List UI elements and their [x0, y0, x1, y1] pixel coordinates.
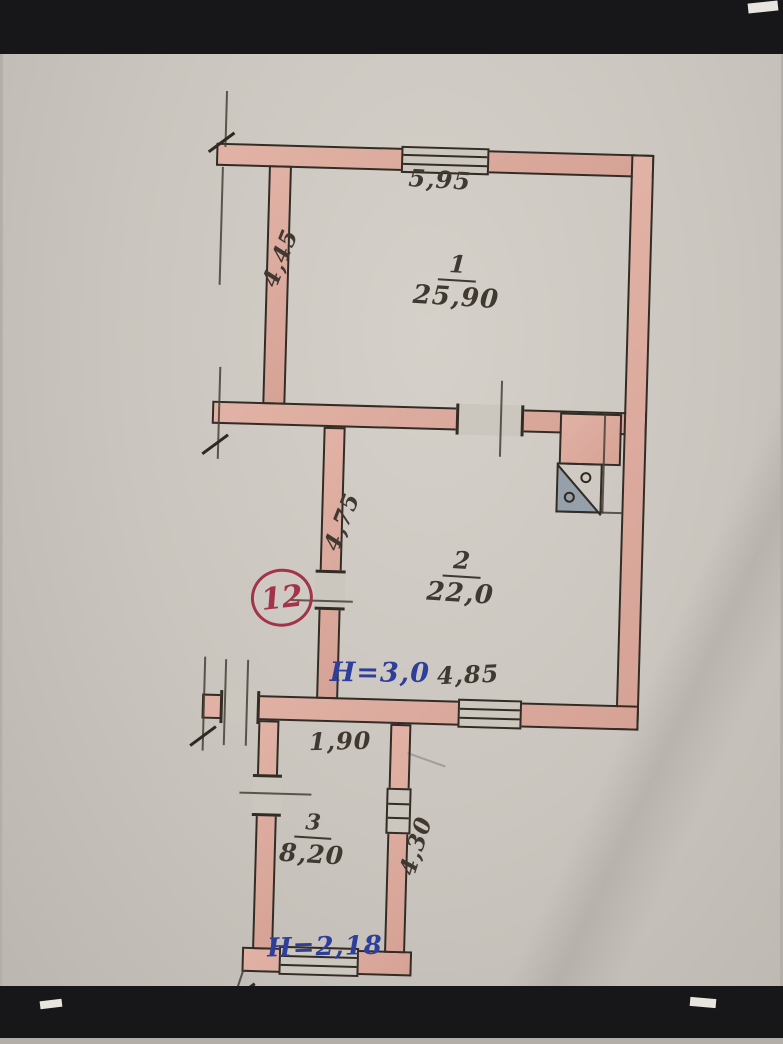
door-opening-middle-wall — [315, 570, 346, 611]
door-opening-room3-left — [252, 774, 282, 817]
ceiling-height-room3: H=2,18 — [267, 931, 383, 964]
apartment-number-badge: 12 — [248, 565, 316, 630]
dimension-passage-width: 1,90 — [309, 726, 372, 757]
stove-firebox-symbol — [555, 462, 602, 513]
extension-line — [219, 167, 224, 285]
window-room2-bottom — [457, 699, 522, 730]
room2-number: 2 — [442, 545, 482, 579]
room3-number: 3 — [295, 809, 333, 840]
torn-edge-bottom — [0, 986, 783, 1038]
room1-number: 1 — [438, 248, 478, 282]
stove-body — [559, 412, 622, 466]
room1-area: 25,90 — [412, 280, 500, 315]
photographed-floor-plan: 5,95 1 25,90 4,45 4,75 12 2 22,0 H=3,0 4… — [0, 0, 783, 1044]
dimension-room2-bottom-width: 4,85 — [436, 659, 500, 691]
room3-label: 3 8,20 — [278, 808, 346, 871]
corner-tick — [201, 434, 229, 455]
room2-area: 22,0 — [426, 577, 495, 611]
room1-label: 1 25,90 — [412, 247, 502, 315]
floor-plan-drawing: 5,95 1 25,90 4,45 4,75 12 2 22,0 H=3,0 4… — [0, 0, 783, 1044]
ceiling-height-room2: H=3,0 — [330, 657, 430, 689]
dimension-top-width: 5,95 — [408, 163, 472, 196]
torn-edge-top — [0, 0, 783, 54]
stray-pencil-mark — [407, 752, 445, 767]
dimension-room1-left-height: 4,45 — [253, 216, 308, 300]
room3-area: 8,20 — [278, 838, 345, 871]
room2-label: 2 22,0 — [426, 544, 497, 611]
door-opening-room1-room2 — [456, 404, 525, 437]
stove-diagonal-line — [557, 464, 601, 516]
wall-room3-left — [252, 720, 279, 950]
